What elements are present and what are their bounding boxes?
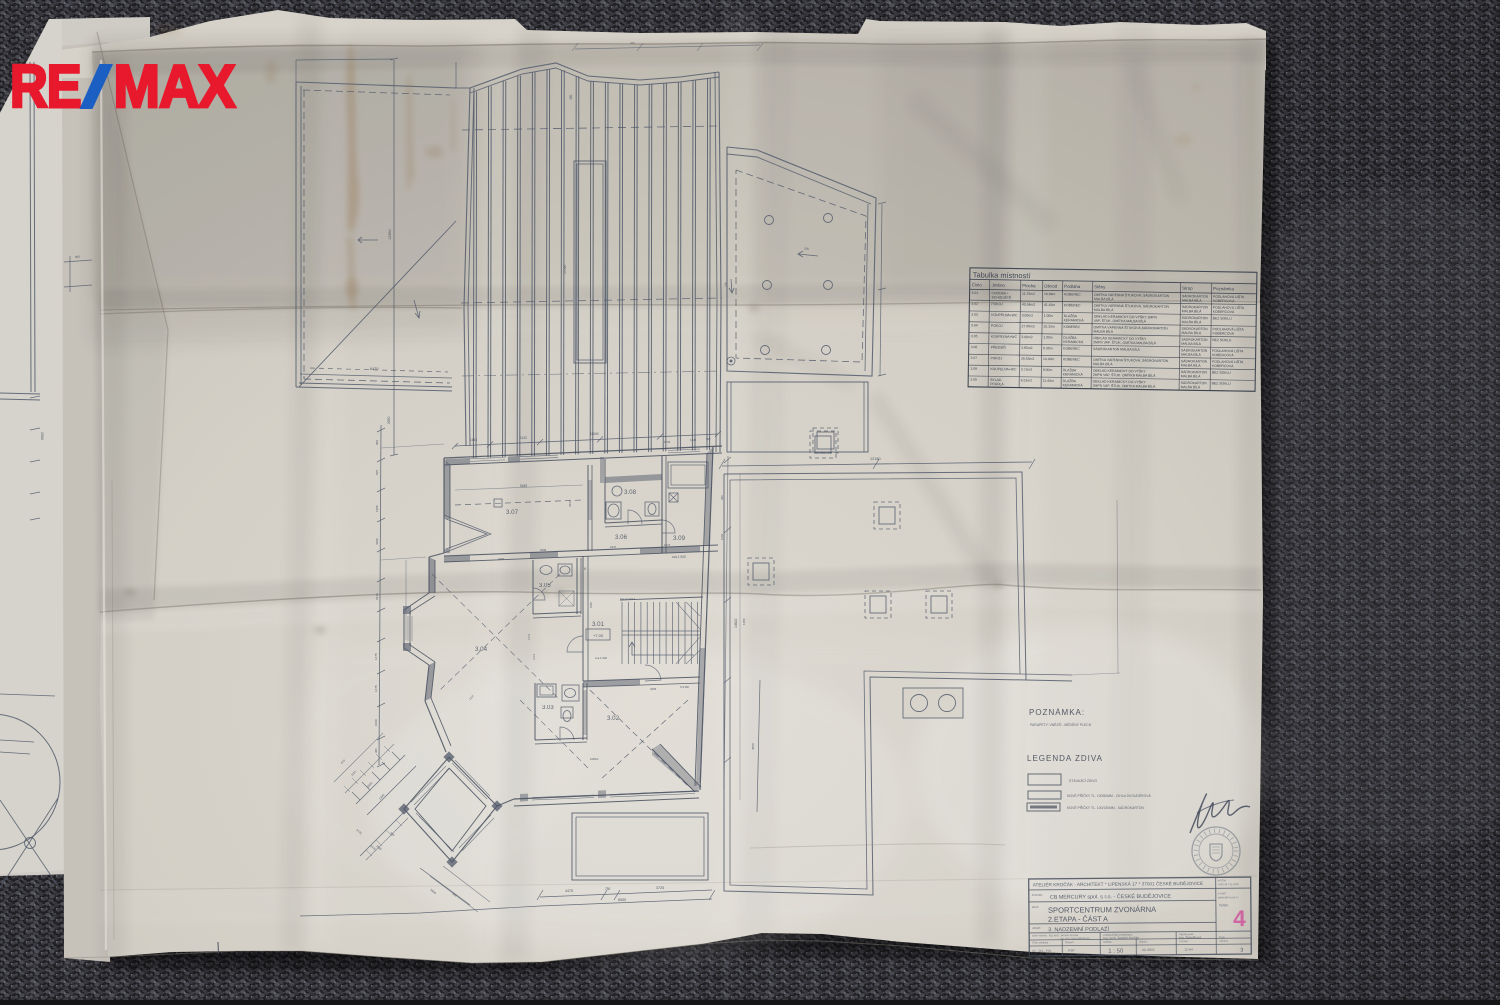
svg-text:2580: 2580 [40, 432, 44, 440]
svg-text:VAP. ŠTUK. OMÍTKA MALBA BÍLÁ: VAP. ŠTUK. OMÍTKA MALBA BÍLÁ [1094, 318, 1147, 324]
svg-text:12980: 12980 [388, 229, 392, 240]
svg-text:2470: 2470 [610, 545, 617, 549]
svg-text:4: 4 [1233, 905, 1246, 931]
svg-text:1950: 1950 [589, 602, 593, 608]
svg-text:1200: 1200 [720, 533, 724, 540]
svg-text:tel./fax:: tel./fax: [1218, 878, 1227, 882]
svg-text:KERAMICKÁ: KERAMICKÁ [1063, 340, 1084, 344]
svg-text:41.42m: 41.42m [1044, 303, 1056, 307]
svg-text:3.03: 3.03 [971, 313, 978, 317]
svg-text:1475: 1475 [374, 685, 378, 692]
svg-text:atelier@krocak.cz: atelier@krocak.cz [1218, 895, 1239, 899]
svg-text:6470: 6470 [370, 367, 378, 371]
svg-text:3.00m2: 3.00m2 [1022, 313, 1033, 317]
svg-text:17060: 17060 [563, 264, 567, 274]
svg-text:POKOJ: POKOJ [991, 324, 1003, 328]
svg-text:KOBEREC: KOBEREC [1064, 325, 1081, 329]
svg-text:BEZ SOKLU: BEZ SOKLU [1213, 316, 1233, 320]
svg-text:PRÁDLA: PRÁDLA [990, 382, 1004, 386]
svg-text:1905: 1905 [375, 505, 379, 512]
svg-text:02 - 210 - P01: 02 - 210 - P01 [1032, 949, 1051, 953]
svg-text:2MPN VAP. ŠTUK. OMÍTKA MALBA B: 2MPN VAP. ŠTUK. OMÍTKA MALBA BÍLÁ [1093, 372, 1156, 378]
svg-text:3.00m2: 3.00m2 [1021, 335, 1032, 339]
svg-text:390: 390 [720, 495, 724, 500]
svg-text:BEZ SOKLU: BEZ SOKLU [1212, 371, 1232, 375]
svg-text:3.06: 3.06 [615, 534, 628, 541]
svg-text:1000: 1000 [374, 719, 378, 726]
svg-text:Strop: Strop [1182, 286, 1193, 291]
svg-text:POZNÁMKA:: POZNÁMKA: [1029, 708, 1085, 717]
svg-text:450: 450 [630, 41, 635, 45]
svg-text:KERAMICKÁ: KERAMICKÁ [1063, 383, 1084, 387]
svg-text:Tabulka místností: Tabulka místností [973, 270, 1032, 280]
svg-text:380: 380 [374, 748, 378, 753]
svg-text:2MPN VAP. ŠTUK. OMÍTKA MALBA B: 2MPN VAP. ŠTUK. OMÍTKA MALBA BÍLÁ [1093, 383, 1156, 389]
svg-text:e-mail:: e-mail: [1218, 891, 1227, 895]
svg-text:MALBA BÍLÁ: MALBA BÍLÁ [1094, 297, 1114, 301]
svg-text:1%: 1% [724, 282, 728, 287]
svg-text:20.53m2: 20.53m2 [1021, 357, 1034, 361]
svg-text:900: 900 [375, 440, 379, 445]
svg-text:6.51m2: 6.51m2 [1021, 378, 1032, 382]
svg-text:KOBERCOVÁ: KOBERCOVÁ [1212, 364, 1234, 368]
svg-text:171.5: 171.5 [528, 633, 531, 640]
svg-text:3.02: 3.02 [607, 715, 620, 722]
svg-text:+7.00: +7.00 [593, 633, 604, 638]
svg-text:PŘEDSÍŇ: PŘEDSÍŇ [991, 344, 1007, 349]
svg-text:171.5: 171.5 [533, 653, 536, 660]
svg-text:3.03: 3.03 [542, 705, 554, 711]
svg-text:BEZ SOKLU: BEZ SOKLU [1212, 338, 1232, 342]
svg-text:3.07: 3.07 [506, 509, 519, 516]
svg-text:3.08: 3.08 [624, 489, 637, 496]
svg-text:KOBEREC: KOBEREC [1063, 347, 1080, 351]
svg-text:1150: 1150 [742, 618, 746, 625]
svg-text:1653: 1653 [470, 438, 477, 442]
svg-text:750: 750 [605, 887, 611, 891]
svg-text:KERAMICKÁ: KERAMICKÁ [1063, 372, 1084, 376]
svg-text:Výtisk:: Výtisk: [1219, 903, 1229, 907]
svg-text:PSP: PSP [1068, 949, 1074, 953]
svg-text:Stěny: Stěny [1094, 284, 1106, 289]
svg-text:STÁVAJÍCÍ ZDIVO: STÁVAJÍCÍ ZDIVO [1069, 779, 1098, 783]
svg-text:2850: 2850 [387, 416, 391, 424]
svg-text:Ing. arch. Dana Wilhelmová: Ing. arch. Dana Wilhelmová [1060, 937, 1090, 940]
svg-text:10010: 10010 [590, 757, 599, 761]
svg-text:POKOJ: POKOJ [991, 356, 1003, 360]
svg-text:3.01: 3.01 [592, 621, 605, 628]
svg-text:535: 535 [375, 470, 379, 475]
svg-text:cca 1.920: cca 1.920 [595, 656, 608, 660]
svg-text:1703: 1703 [664, 440, 671, 444]
svg-text:1.00m: 1.00m [1044, 314, 1054, 318]
svg-text:S.S 560: S.S 560 [680, 686, 690, 689]
svg-text:MALBA BÍLÁ: MALBA BÍLÁ [1181, 342, 1201, 346]
svg-text:KOBERCOVÁ: KOBERCOVÁ [1213, 310, 1235, 314]
svg-text:360: 360 [75, 255, 81, 259]
svg-text:KOUPELNA+WC: KOUPELNA+WC [990, 367, 1017, 371]
svg-text:380: 380 [706, 437, 711, 441]
svg-text:Datum :: Datum : [1139, 939, 1148, 943]
svg-text:3627: 3627 [568, 500, 572, 507]
svg-text:Číslo: Číslo [972, 282, 983, 287]
svg-text:MALBA BÍLÁ: MALBA BÍLÁ [1182, 320, 1202, 324]
svg-text:BEZ SOKLU: BEZ SOKLU [1212, 381, 1232, 385]
svg-text:Ing. arch. Jaromír Kročák: Ing. arch. Jaromír Kročák [1103, 936, 1139, 940]
svg-text:1673: 1673 [664, 543, 671, 547]
svg-text:4305: 4305 [650, 687, 657, 691]
svg-text:MALBA BÍLÁ: MALBA BÍLÁ [1182, 309, 1202, 313]
svg-text:SCHODIŠTĚ: SCHODIŠTĚ [991, 294, 1012, 299]
svg-text:0.30m: 0.30m [1043, 346, 1053, 350]
svg-text:MAX: MAX [113, 54, 235, 120]
svg-text:450: 450 [569, 94, 573, 100]
svg-text:MALBA BÍLÁ: MALBA BÍLÁ [1181, 363, 1201, 367]
svg-text:12180: 12180 [870, 457, 881, 461]
svg-text:3.05: 3.05 [971, 334, 978, 338]
svg-text:MALBA BÍLÁ: MALBA BÍLÁ [1093, 362, 1113, 366]
svg-text:Ing. Šebelíková: Ing. Šebelíková [1179, 934, 1201, 939]
svg-text:09 /2002: 09 /2002 [1142, 948, 1155, 952]
svg-text:POKOJ: POKOJ [991, 302, 1003, 306]
svg-text:8950: 8950 [618, 898, 626, 902]
svg-text:KOUPELNA+WC: KOUPELNA+WC [991, 335, 1018, 339]
svg-text:SPORTCENTRUM ZVONÁRNA: SPORTCENTRUM ZVONÁRNA [1048, 905, 1157, 915]
svg-text:4475: 4475 [565, 889, 573, 893]
svg-text:19.49m: 19.49m [1043, 357, 1055, 361]
svg-text:27.99m2: 27.99m2 [1022, 324, 1035, 328]
svg-text:MALBA BÍLÁ: MALBA BÍLÁ [1181, 385, 1201, 389]
svg-text:3.09: 3.09 [970, 378, 977, 382]
svg-text:4560: 4560 [751, 743, 755, 750]
svg-text:2.85m2: 2.85m2 [1021, 346, 1032, 350]
svg-text:výkresu :: výkresu : [1219, 939, 1230, 943]
svg-text:NOVÉ PŘÍČKY TL. 100/150MM - SÁ: NOVÉ PŘÍČKY TL. 100/150MM - SÁDROKARTON [1067, 805, 1144, 810]
svg-text:25.32m: 25.32m [1044, 325, 1056, 329]
svg-text:3.02: 3.02 [971, 302, 978, 306]
svg-text:KOBERCOVÁ: KOBERCOVÁ [1212, 331, 1234, 335]
svg-text:MALBA BÍLÁ: MALBA BÍLÁ [1182, 298, 1202, 302]
svg-text:11.33m2: 11.33m2 [1022, 292, 1035, 296]
svg-text:12-A4: 12-A4 [1184, 948, 1193, 952]
svg-text:KERAMICKÁ: KERAMICKÁ [1064, 318, 1085, 322]
svg-text:Plocha: Plocha [1022, 283, 1036, 288]
svg-text:MALBA BÍLÁ: MALBA BÍLÁ [1181, 353, 1201, 357]
svg-text:3.06: 3.06 [971, 345, 978, 349]
svg-text:1130: 1130 [520, 436, 527, 440]
svg-text:2608: 2608 [540, 548, 547, 552]
svg-text:RE: RE [10, 53, 81, 120]
svg-text:45.54m2: 45.54m2 [1022, 303, 1035, 307]
svg-text:KOBERCOVÁ: KOBERCOVÁ [1213, 299, 1235, 303]
svg-text:cca 1.920: cca 1.920 [672, 555, 686, 559]
svg-text:19x 17.2/27.0: 19x 17.2/27.0 [620, 598, 636, 601]
svg-text:2.ETAPA - ČÁST A: 2.ETAPA - ČÁST A [1048, 914, 1108, 924]
svg-text:3.01: 3.01 [972, 291, 979, 295]
svg-text:6130: 6130 [375, 593, 379, 600]
svg-text:Podlaha: Podlaha [1064, 284, 1081, 289]
svg-text:3.72m2: 3.72m2 [1021, 368, 1032, 372]
svg-text:PARAPETY: VNĚJŠÍ - MĚDĚNÝ PLEC: PARAPETY: VNĚJŠÍ - MĚDĚNÝ PLECH [1030, 722, 1092, 727]
svg-text:SÁDROKARTON MALBA BÍLÁ: SÁDROKARTON MALBA BÍLÁ [1093, 347, 1140, 352]
svg-text:Stupeň :: Stupeň : [1065, 940, 1075, 944]
svg-text:KOBERCOVÁ: KOBERCOVÁ [1212, 353, 1234, 357]
svg-text:11.44m: 11.44m [1043, 379, 1054, 383]
svg-text:Měřítko :: Měřítko : [1103, 940, 1113, 944]
svg-text:3.09: 3.09 [673, 535, 686, 542]
svg-text:1 : 50: 1 : 50 [1108, 949, 1124, 955]
svg-text:1.00m: 1.00m [1043, 335, 1053, 339]
svg-text:3.04: 3.04 [971, 323, 978, 327]
svg-text:4280: 4280 [498, 557, 505, 561]
svg-text:3.08: 3.08 [970, 367, 977, 371]
svg-text:2MPN VAP. ŠTUK. OMÍTKA MALBA B: 2MPN VAP. ŠTUK. OMÍTKA MALBA BÍLÁ [1093, 339, 1156, 345]
svg-text:11060: 11060 [590, 432, 599, 436]
svg-text:1%: 1% [804, 247, 809, 251]
svg-text:akce:: akce: [1032, 905, 1039, 909]
svg-text:3: 3 [1240, 948, 1243, 954]
svg-text:MALBA BÍLÁ: MALBA BÍLÁ [1181, 374, 1201, 378]
svg-text:3725: 3725 [656, 886, 664, 890]
svg-text:19.84m: 19.84m [1044, 292, 1056, 296]
svg-text:14622: 14622 [734, 618, 738, 628]
svg-text:4280: 4280 [375, 538, 379, 545]
svg-text:1320: 1320 [690, 438, 697, 442]
svg-text:LEGENDA ZDIVA: LEGENDA ZDIVA [1027, 754, 1103, 763]
svg-text:3.07: 3.07 [971, 356, 978, 360]
svg-text:Formát :: Formát : [1179, 939, 1189, 943]
svg-text:investor:: investor: [1032, 893, 1044, 897]
svg-text:Obvod: Obvod [1044, 283, 1058, 288]
svg-text:obsah:: obsah: [1032, 926, 1041, 930]
svg-text:Jméno: Jméno [992, 283, 1006, 288]
svg-text:KOBEREC: KOBEREC [1063, 357, 1080, 361]
svg-text:+420 38 731 9538: +420 38 731 9538 [1218, 882, 1240, 886]
svg-text:MALBA BÍLÁ: MALBA BÍLÁ [1094, 308, 1114, 312]
svg-text:8.00m: 8.00m [1043, 368, 1053, 372]
svg-text:MALBA BÍLÁ: MALBA BÍLÁ [1181, 331, 1201, 335]
svg-text:KOBEREC: KOBEREC [1064, 292, 1081, 296]
svg-text:Poznámka: Poznámka [1213, 286, 1234, 291]
svg-text:KOBEREC: KOBEREC [1064, 303, 1081, 307]
svg-text:NOVÉ PŘÍČKY TL. 100/50MM - CIH: NOVÉ PŘÍČKY TL. 100/50MM - CIHLA DVOUDĚR… [1067, 793, 1151, 798]
svg-text:1475: 1475 [374, 653, 378, 660]
svg-text:KOUPELNA+WC: KOUPELNA+WC [991, 313, 1018, 317]
svg-text:3.04: 3.04 [475, 646, 488, 653]
svg-text:MALBA BÍLÁ: MALBA BÍLÁ [1093, 330, 1113, 334]
